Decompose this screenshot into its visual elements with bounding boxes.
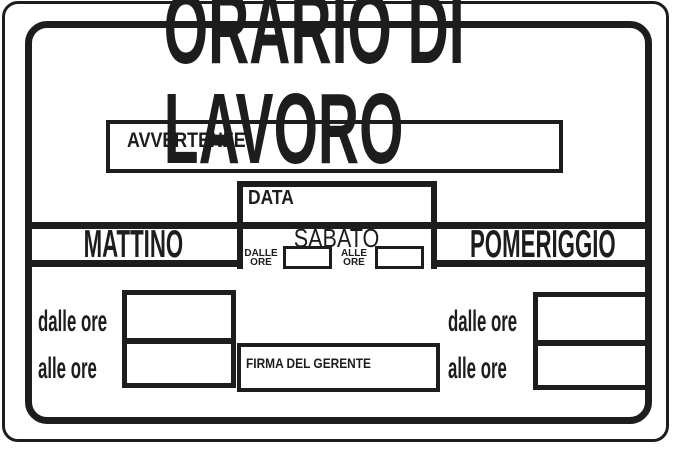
- afternoon-to-label: alle ore: [448, 355, 507, 383]
- afternoon-from-label: dalle ore: [448, 308, 517, 336]
- date-label-wrap: DATA: [248, 188, 302, 208]
- afternoon-times-divider: [533, 340, 651, 346]
- morning-times-divider: [122, 338, 236, 344]
- sign-title-wrap: ORARIO DI LAVORO: [32, 41, 645, 117]
- morning-heading: MATTINO: [83, 225, 183, 264]
- saturday-from-label-line2: ORE: [241, 258, 281, 267]
- morning-to-label: alle ore: [38, 355, 97, 383]
- saturday-from-field: [283, 246, 332, 269]
- notices-label-wrap: AVVERTENZE: [127, 131, 267, 151]
- notices-label: AVVERTENZE: [127, 131, 246, 151]
- saturday-to-label-line2: ORE: [336, 258, 372, 267]
- saturday-to-field: [375, 246, 424, 269]
- afternoon-heading: POMERIGGIO: [470, 225, 616, 264]
- afternoon-band: POMERIGGIO: [434, 222, 651, 267]
- signature-label: FIRMA DEL GERENTE: [246, 355, 371, 371]
- date-label: DATA: [248, 188, 294, 208]
- morning-from-label: dalle ore: [38, 308, 107, 336]
- work-hours-sign: ORARIO DI LAVORO AVVERTENZE DATA SABATO …: [0, 0, 674, 450]
- signature-label-wrap: FIRMA DEL GERENTE: [246, 355, 393, 371]
- saturday-from-label: DALLE ORE: [240, 249, 282, 267]
- morning-band: MATTINO: [26, 222, 240, 267]
- saturday-to-label: ALLE ORE: [335, 249, 373, 267]
